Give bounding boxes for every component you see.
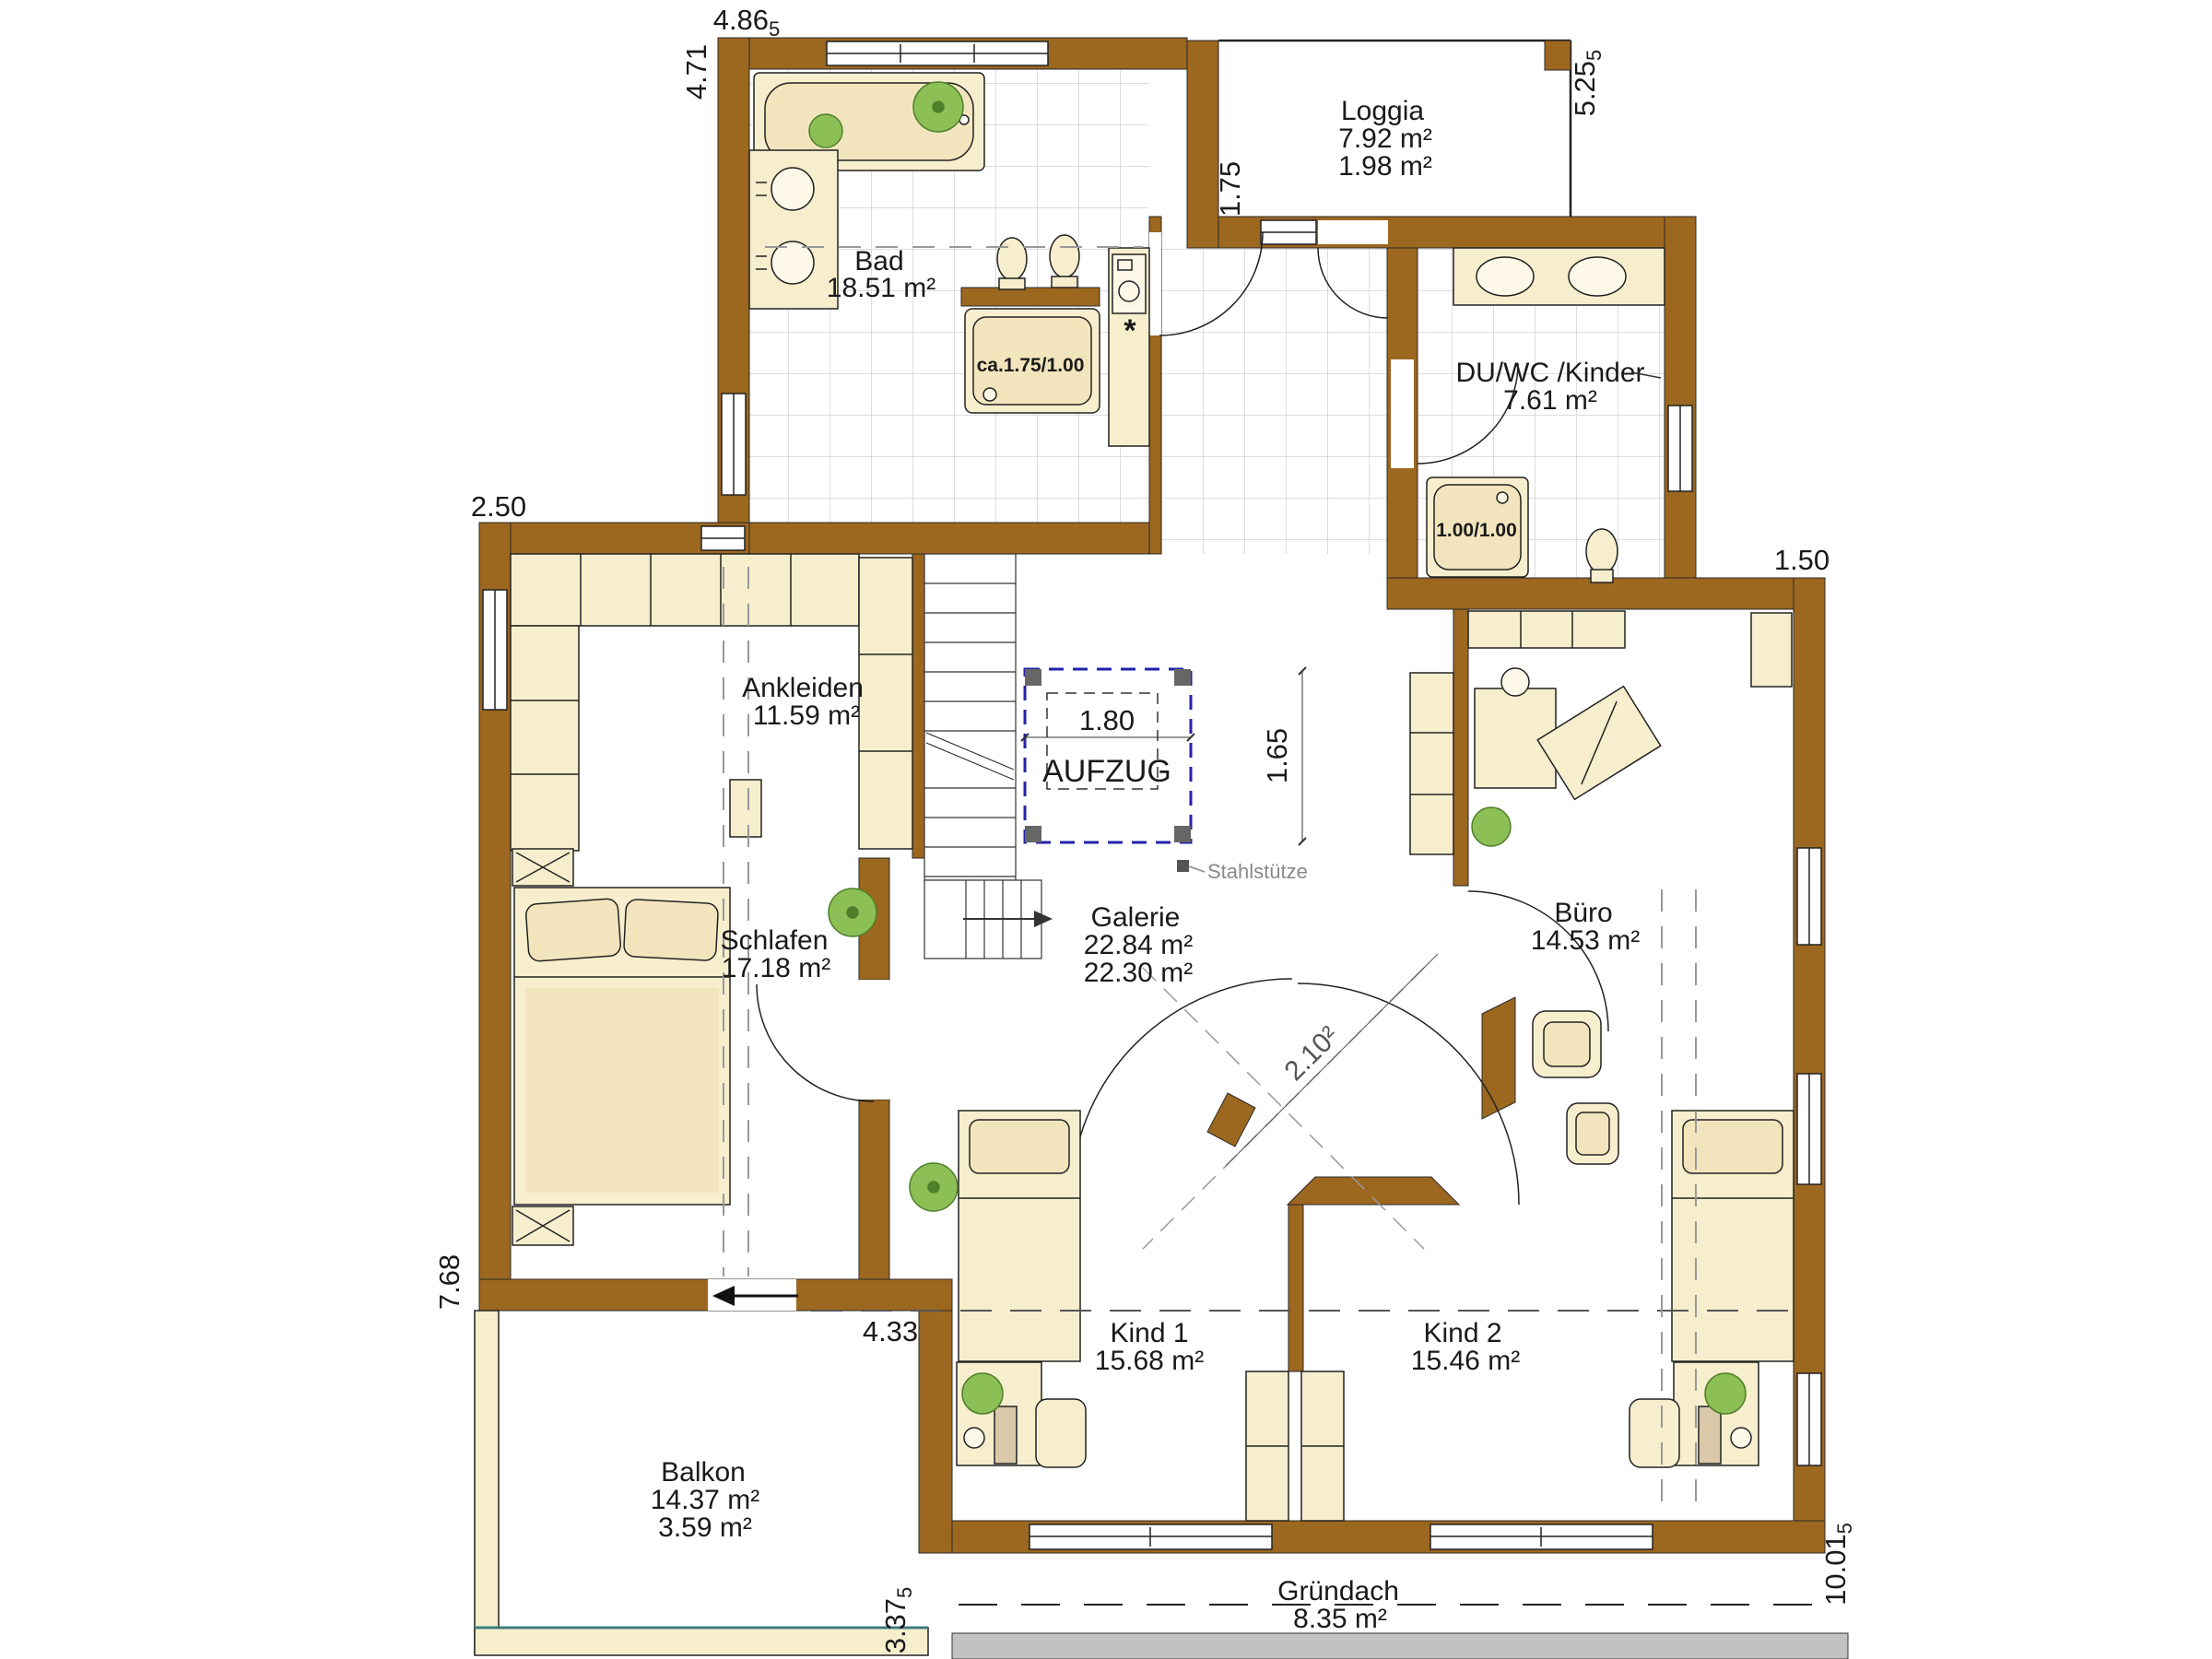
window-bad-top — [827, 41, 1048, 65]
desk-chair — [1501, 668, 1529, 696]
kind2-furniture — [1301, 1111, 1794, 1521]
wall-schlafen-right-lower — [859, 1100, 889, 1279]
gallery-side-shelf — [1410, 673, 1453, 854]
wardrobe-right-column — [859, 558, 912, 849]
room-label-schlafen: Schlafen — [721, 925, 829, 956]
dim-balcony-height: 3.375 — [879, 1587, 916, 1654]
washbasin — [1569, 257, 1626, 296]
bed-kind2 — [1672, 1111, 1794, 1361]
door-arc-schlafen — [757, 984, 874, 1101]
nightstand — [512, 849, 573, 886]
svg-text:1.65: 1.65 — [1261, 728, 1293, 783]
dim-right-height: 10.015 — [1819, 1523, 1856, 1606]
dim-left-top-height: 4.71 — [680, 44, 712, 100]
elevator-corner — [1025, 669, 1041, 686]
shower-kids-size-label: 1.00/1.00 — [1436, 520, 1517, 541]
dim-bottom-offset: 4.33 — [863, 1315, 918, 1347]
shower-size-label: ca.1.75/1.00 — [977, 355, 1085, 376]
plant-icon — [1705, 1373, 1746, 1414]
svg-text:22.84 m²: 22.84 m² — [1084, 930, 1193, 960]
svg-text:8.35 m²: 8.35 m² — [1293, 1604, 1387, 1634]
balcony-exit — [708, 1279, 798, 1311]
dim-loggia-height: 5.255 — [1569, 50, 1606, 117]
window-loggia-bottom — [1261, 220, 1316, 244]
wall-bad-bottom — [749, 523, 1161, 554]
loggia-pillar — [1545, 41, 1571, 70]
steel-column-icon — [1177, 860, 1189, 872]
green-roof — [952, 1605, 1848, 1659]
door-arc-kind1 — [1071, 979, 1292, 1200]
plant-icon — [962, 1373, 1003, 1414]
chair — [1630, 1399, 1679, 1467]
wardrobe-top-row — [511, 554, 859, 626]
nightstand — [512, 1206, 573, 1245]
elevator-corner — [1025, 826, 1041, 842]
svg-text:11.59 m²: 11.59 m² — [753, 700, 860, 731]
steel-column-note: Stahlstütze — [1177, 860, 1308, 883]
svg-text:15.68 m²: 15.68 m² — [1095, 1346, 1204, 1376]
bed-kind1 — [959, 1111, 1080, 1361]
svg-text:7.61 m²: 7.61 m² — [1503, 385, 1597, 416]
pillow — [1683, 1120, 1783, 1173]
bidet — [1050, 235, 1079, 288]
window-ankleiden-top — [701, 526, 745, 550]
elevator-corner — [1174, 669, 1191, 686]
elevator-depth-dim: 1.65 — [1261, 667, 1306, 845]
dim-left-wing-offset: 2.50 — [471, 490, 526, 523]
window-kind1-bottom — [1030, 1524, 1272, 1549]
window-buero-right-1 — [1797, 848, 1821, 945]
elevator-width-dim: 1.80 — [1079, 704, 1135, 736]
wall-gallery-south — [1288, 1177, 1459, 1205]
toilet-kids — [1586, 529, 1618, 582]
room-label-ankleiden: Ankleiden — [742, 673, 864, 703]
wall-buero-left — [1453, 609, 1468, 886]
schlafen-furniture — [512, 849, 730, 1245]
svg-text:22.30 m²: 22.30 m² — [1084, 958, 1193, 988]
wall-gallery-west-angled — [1207, 1093, 1255, 1147]
window-kind2-bottom — [1430, 1524, 1653, 1549]
wall-gallery-east-angled — [1482, 997, 1515, 1119]
room-label-buero: Büro — [1554, 898, 1612, 928]
svg-text:3.59 m²: 3.59 m² — [658, 1512, 752, 1543]
door-gap-duwc — [1391, 359, 1414, 468]
gallery-diagonal-dim: 2.10² — [1278, 1020, 1345, 1087]
dim-left-height: 7.68 — [433, 1254, 465, 1310]
window-bad-left — [722, 394, 746, 495]
plant-icon — [1472, 807, 1511, 846]
window-duwc-right — [1668, 406, 1692, 491]
wardrobe-left-column — [511, 626, 579, 851]
room-label-galerie: Galerie — [1091, 902, 1181, 933]
svg-text:14.37 m²: 14.37 m² — [651, 1485, 759, 1515]
svg-text:15.46 m²: 15.46 m² — [1411, 1346, 1520, 1376]
double-bed — [514, 888, 730, 1205]
door-gap-schlafen — [859, 980, 889, 1100]
svg-text:1.98 m²: 1.98 m² — [1338, 151, 1432, 182]
elevator-label: AUFZUG — [1042, 754, 1171, 789]
floor-plan-drawing: 1.80 AUFZUG 1.65 2.10² — [0, 0, 2212, 1659]
cabinet-top — [1468, 611, 1625, 648]
pillow — [623, 899, 718, 960]
pillow — [525, 899, 621, 962]
svg-text:7.92 m²: 7.92 m² — [1338, 124, 1432, 154]
window-buero-right-2 — [1797, 1074, 1821, 1184]
elevator: 1.80 AUFZUG 1.65 — [1021, 667, 1306, 845]
room-label-balkon: Balkon — [661, 1457, 746, 1488]
door-gap-loggia — [1318, 220, 1388, 244]
washer-connection-mark: * — [1124, 313, 1136, 348]
dim-top-width: 4.865 — [713, 4, 781, 41]
balcony-parapet-left — [475, 1311, 499, 1653]
corridor-tiles — [1161, 248, 1387, 554]
room-label-kind2: Kind 2 — [1423, 1318, 1501, 1348]
dresser — [730, 780, 761, 837]
room-label-loggia: Loggia — [1341, 96, 1424, 126]
room-label-duwc: DU/WC /Kinder — [1455, 358, 1644, 388]
wall-ankleiden-right — [912, 554, 924, 858]
steel-column-label: Stahlstütze — [1207, 860, 1308, 883]
svg-text:17.18 m²: 17.18 m² — [722, 953, 830, 983]
stool — [964, 1428, 984, 1448]
balcony-parapet-bottom — [475, 1628, 928, 1655]
wall-kind1-left — [919, 1311, 952, 1553]
plant-icon — [809, 114, 842, 147]
room-label-kind1: Kind 1 — [1110, 1318, 1188, 1348]
washbasin — [1477, 257, 1534, 296]
door-gap-bad — [1149, 232, 1161, 335]
toilet — [997, 238, 1027, 289]
floor-plan-page: 1.80 AUFZUG 1.65 2.10² — [0, 0, 2212, 1659]
elevator-corner — [1174, 826, 1191, 842]
window-leftwing-left — [483, 590, 507, 710]
window-kind2-right — [1797, 1373, 1821, 1465]
dim-loggia-depth: 1.75 — [1214, 161, 1246, 217]
dim-right-wing-offset: 1.50 — [1774, 544, 1830, 576]
stool — [1731, 1428, 1751, 1448]
svg-text:18.51 m²: 18.51 m² — [827, 273, 935, 303]
roof-edge-strip — [952, 1633, 1848, 1659]
pillow — [970, 1120, 1069, 1173]
chair — [1036, 1399, 1086, 1467]
stair-up-arrow — [1034, 911, 1053, 927]
kind1-furniture — [957, 1111, 1288, 1521]
double-washbasin — [749, 150, 838, 309]
room-label-gruendach: Gründach — [1277, 1576, 1399, 1606]
svg-text:14.53 m²: 14.53 m² — [1531, 925, 1640, 956]
wall-wc-partition — [961, 288, 1100, 306]
cabinet-right — [1751, 613, 1792, 687]
wall-kind-partition — [1288, 1205, 1303, 1371]
